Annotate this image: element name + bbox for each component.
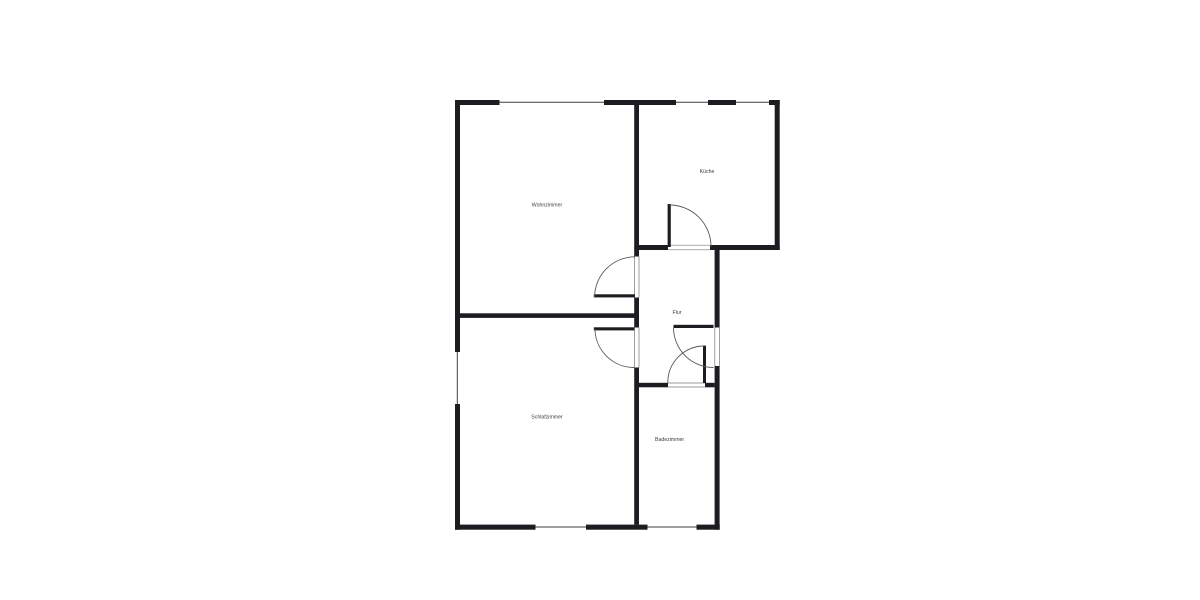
svg-text:Schlafzimmer: Schlafzimmer [531,415,563,421]
svg-text:Flur: Flur [673,310,682,316]
svg-text:Küche: Küche [700,169,715,175]
svg-text:Wohnzimmer: Wohnzimmer [532,202,563,208]
svg-text:Badezimmer: Badezimmer [655,437,684,443]
